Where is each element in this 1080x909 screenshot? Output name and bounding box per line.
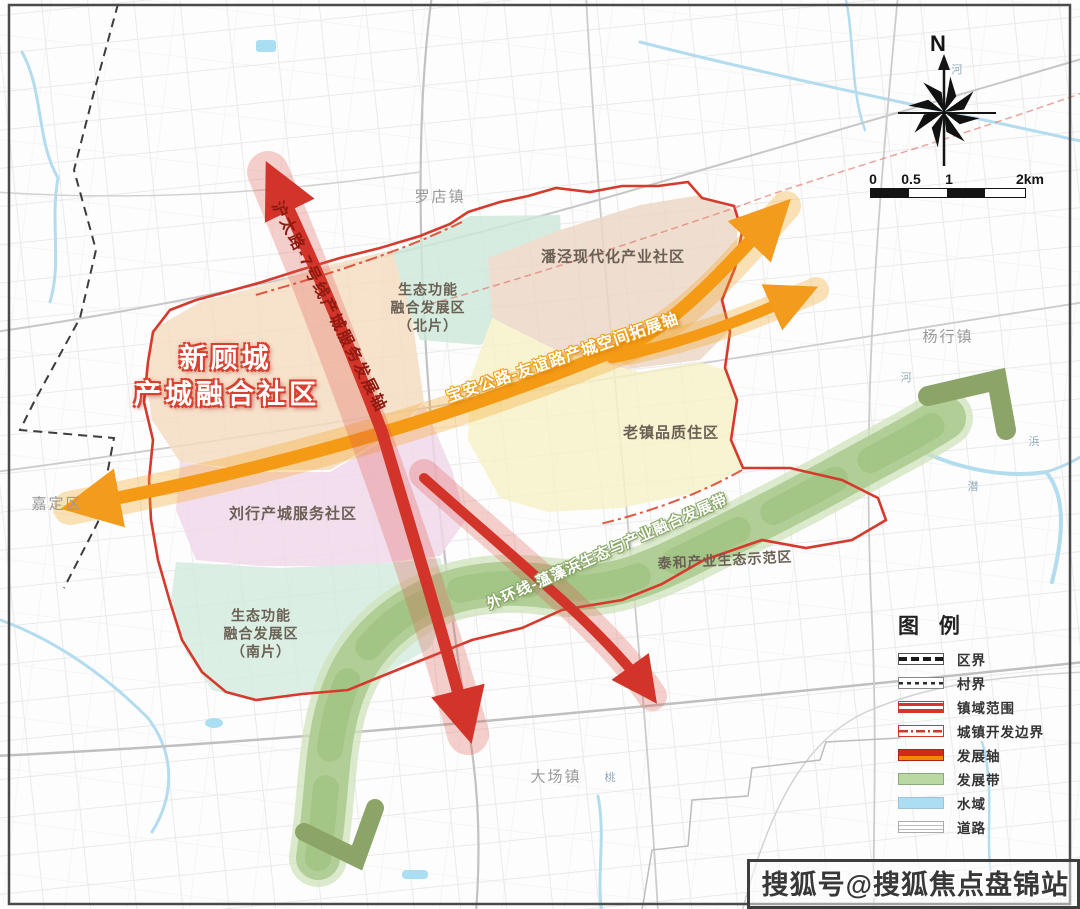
legend-item-development-edge: 城镇开发边界 [898,724,1073,737]
road-swatch [898,821,944,833]
legend-label: 水域 [957,793,986,813]
scale-segment [947,189,985,197]
legend-item-town-range: 镇域范围 [898,700,1073,713]
legend-panel: 图 例 区界 村界 镇域范围 城镇开发边界 发展轴 发展带 水域 [898,610,1073,844]
village-boundary-swatch [898,677,944,689]
legend-label: 道路 [957,817,986,837]
town-range-swatch [898,701,944,713]
legend-label: 发展轴 [957,745,1001,765]
legend-item-district-boundary: 区界 [898,652,1073,665]
legend-label: 发展带 [957,769,1001,789]
scale-segment [871,189,909,197]
legend-item-village-boundary: 村界 [898,676,1073,689]
legend-item-development-axis: 发展轴 [898,748,1073,761]
legend-title: 图 例 [898,610,1073,640]
legend-label: 城镇开发边界 [957,721,1044,741]
scale-segment [985,189,1023,197]
planning-map: 新顾城 产城融合社区 沪太路-7号线产城服务发展轴 宝安公路-友谊路产城空间拓展… [0,0,1080,909]
development-axis-swatch [898,749,944,761]
legend-label: 区界 [957,649,986,669]
scale-bar [870,188,1026,198]
legend-item-water: 水域 [898,796,1073,809]
development-belt-swatch [898,773,944,785]
legend-item-development-belt: 发展带 [898,772,1073,785]
water-swatch [898,797,944,809]
watermark: 搜狐号@搜狐焦点盘锦站 [747,859,1080,909]
district-boundary-swatch [898,653,944,665]
scale-segment [909,189,947,197]
legend-item-road: 道路 [898,820,1073,833]
development-edge-swatch [898,725,944,737]
legend-label: 镇域范围 [957,697,1015,717]
legend-label: 村界 [957,673,986,693]
